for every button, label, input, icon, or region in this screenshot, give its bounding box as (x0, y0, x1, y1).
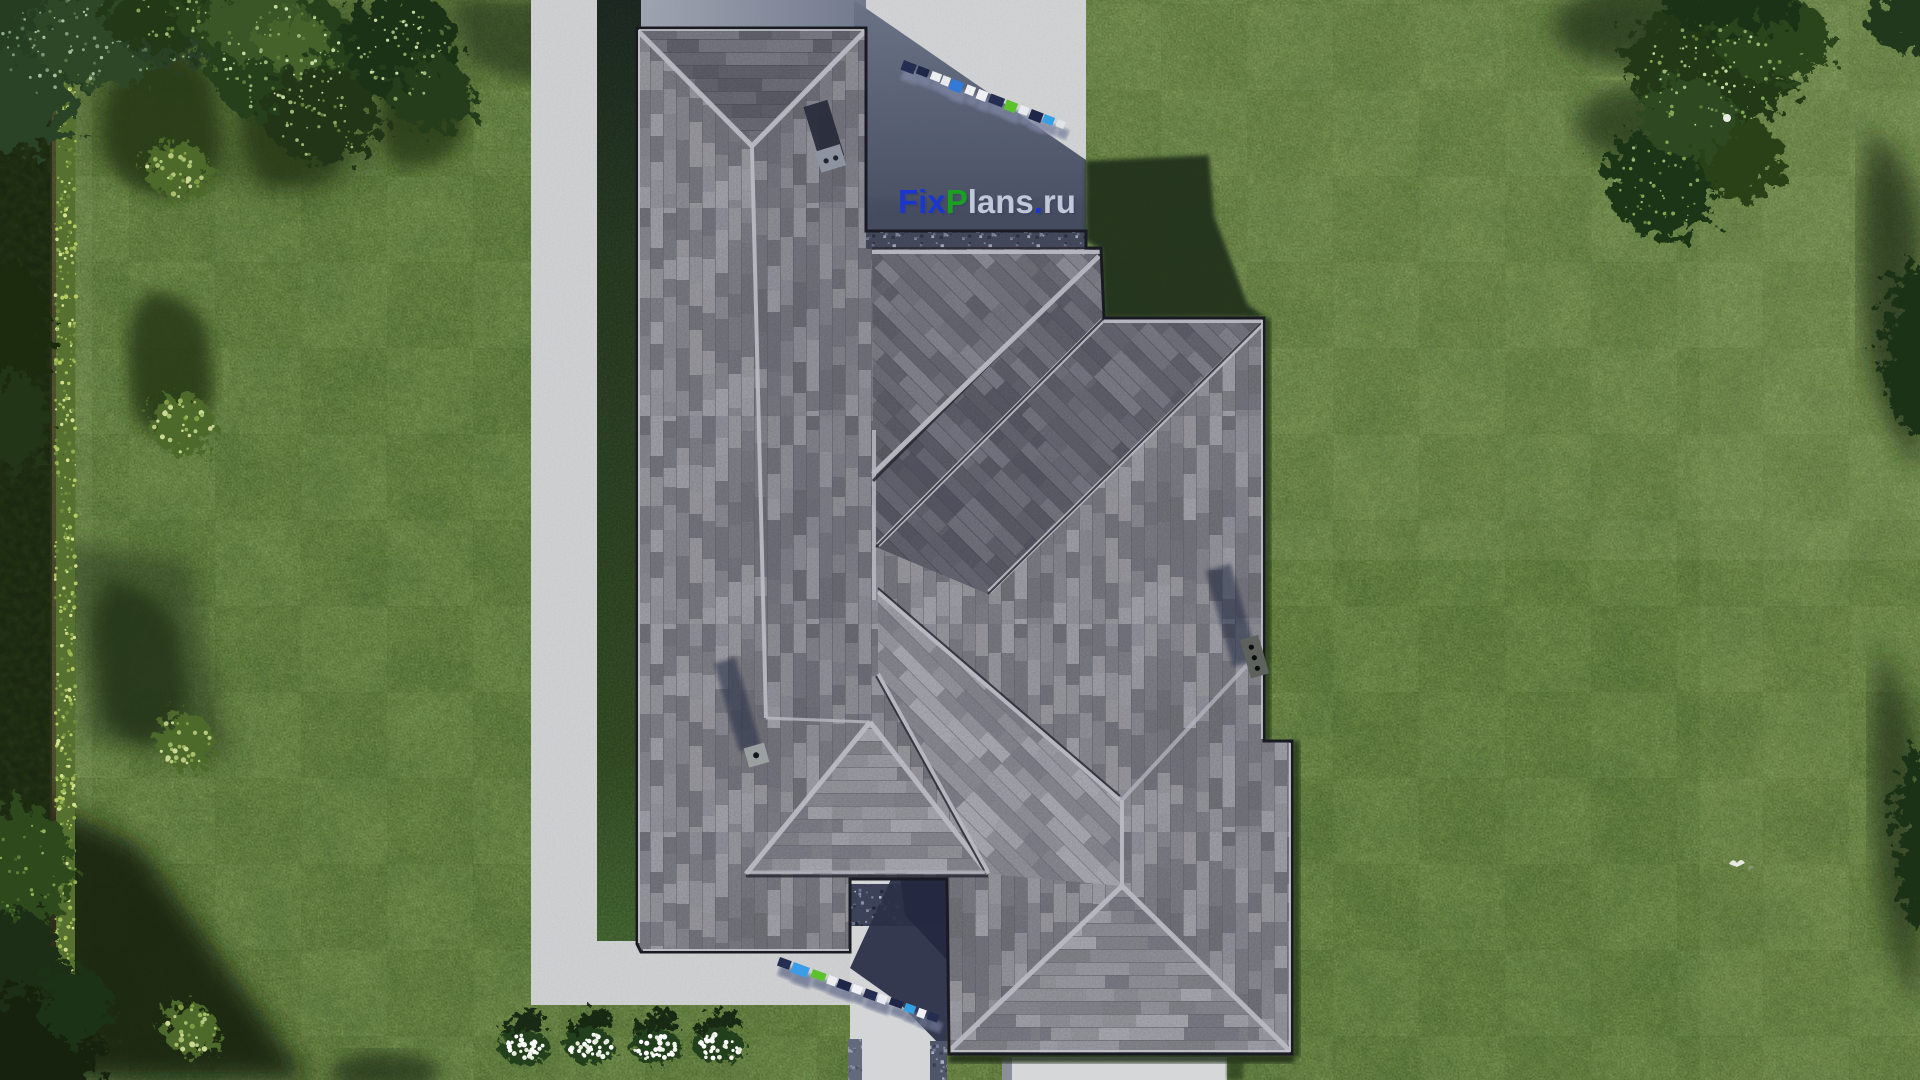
svg-text:FixPlans.ru: FixPlans.ru (898, 183, 1076, 220)
